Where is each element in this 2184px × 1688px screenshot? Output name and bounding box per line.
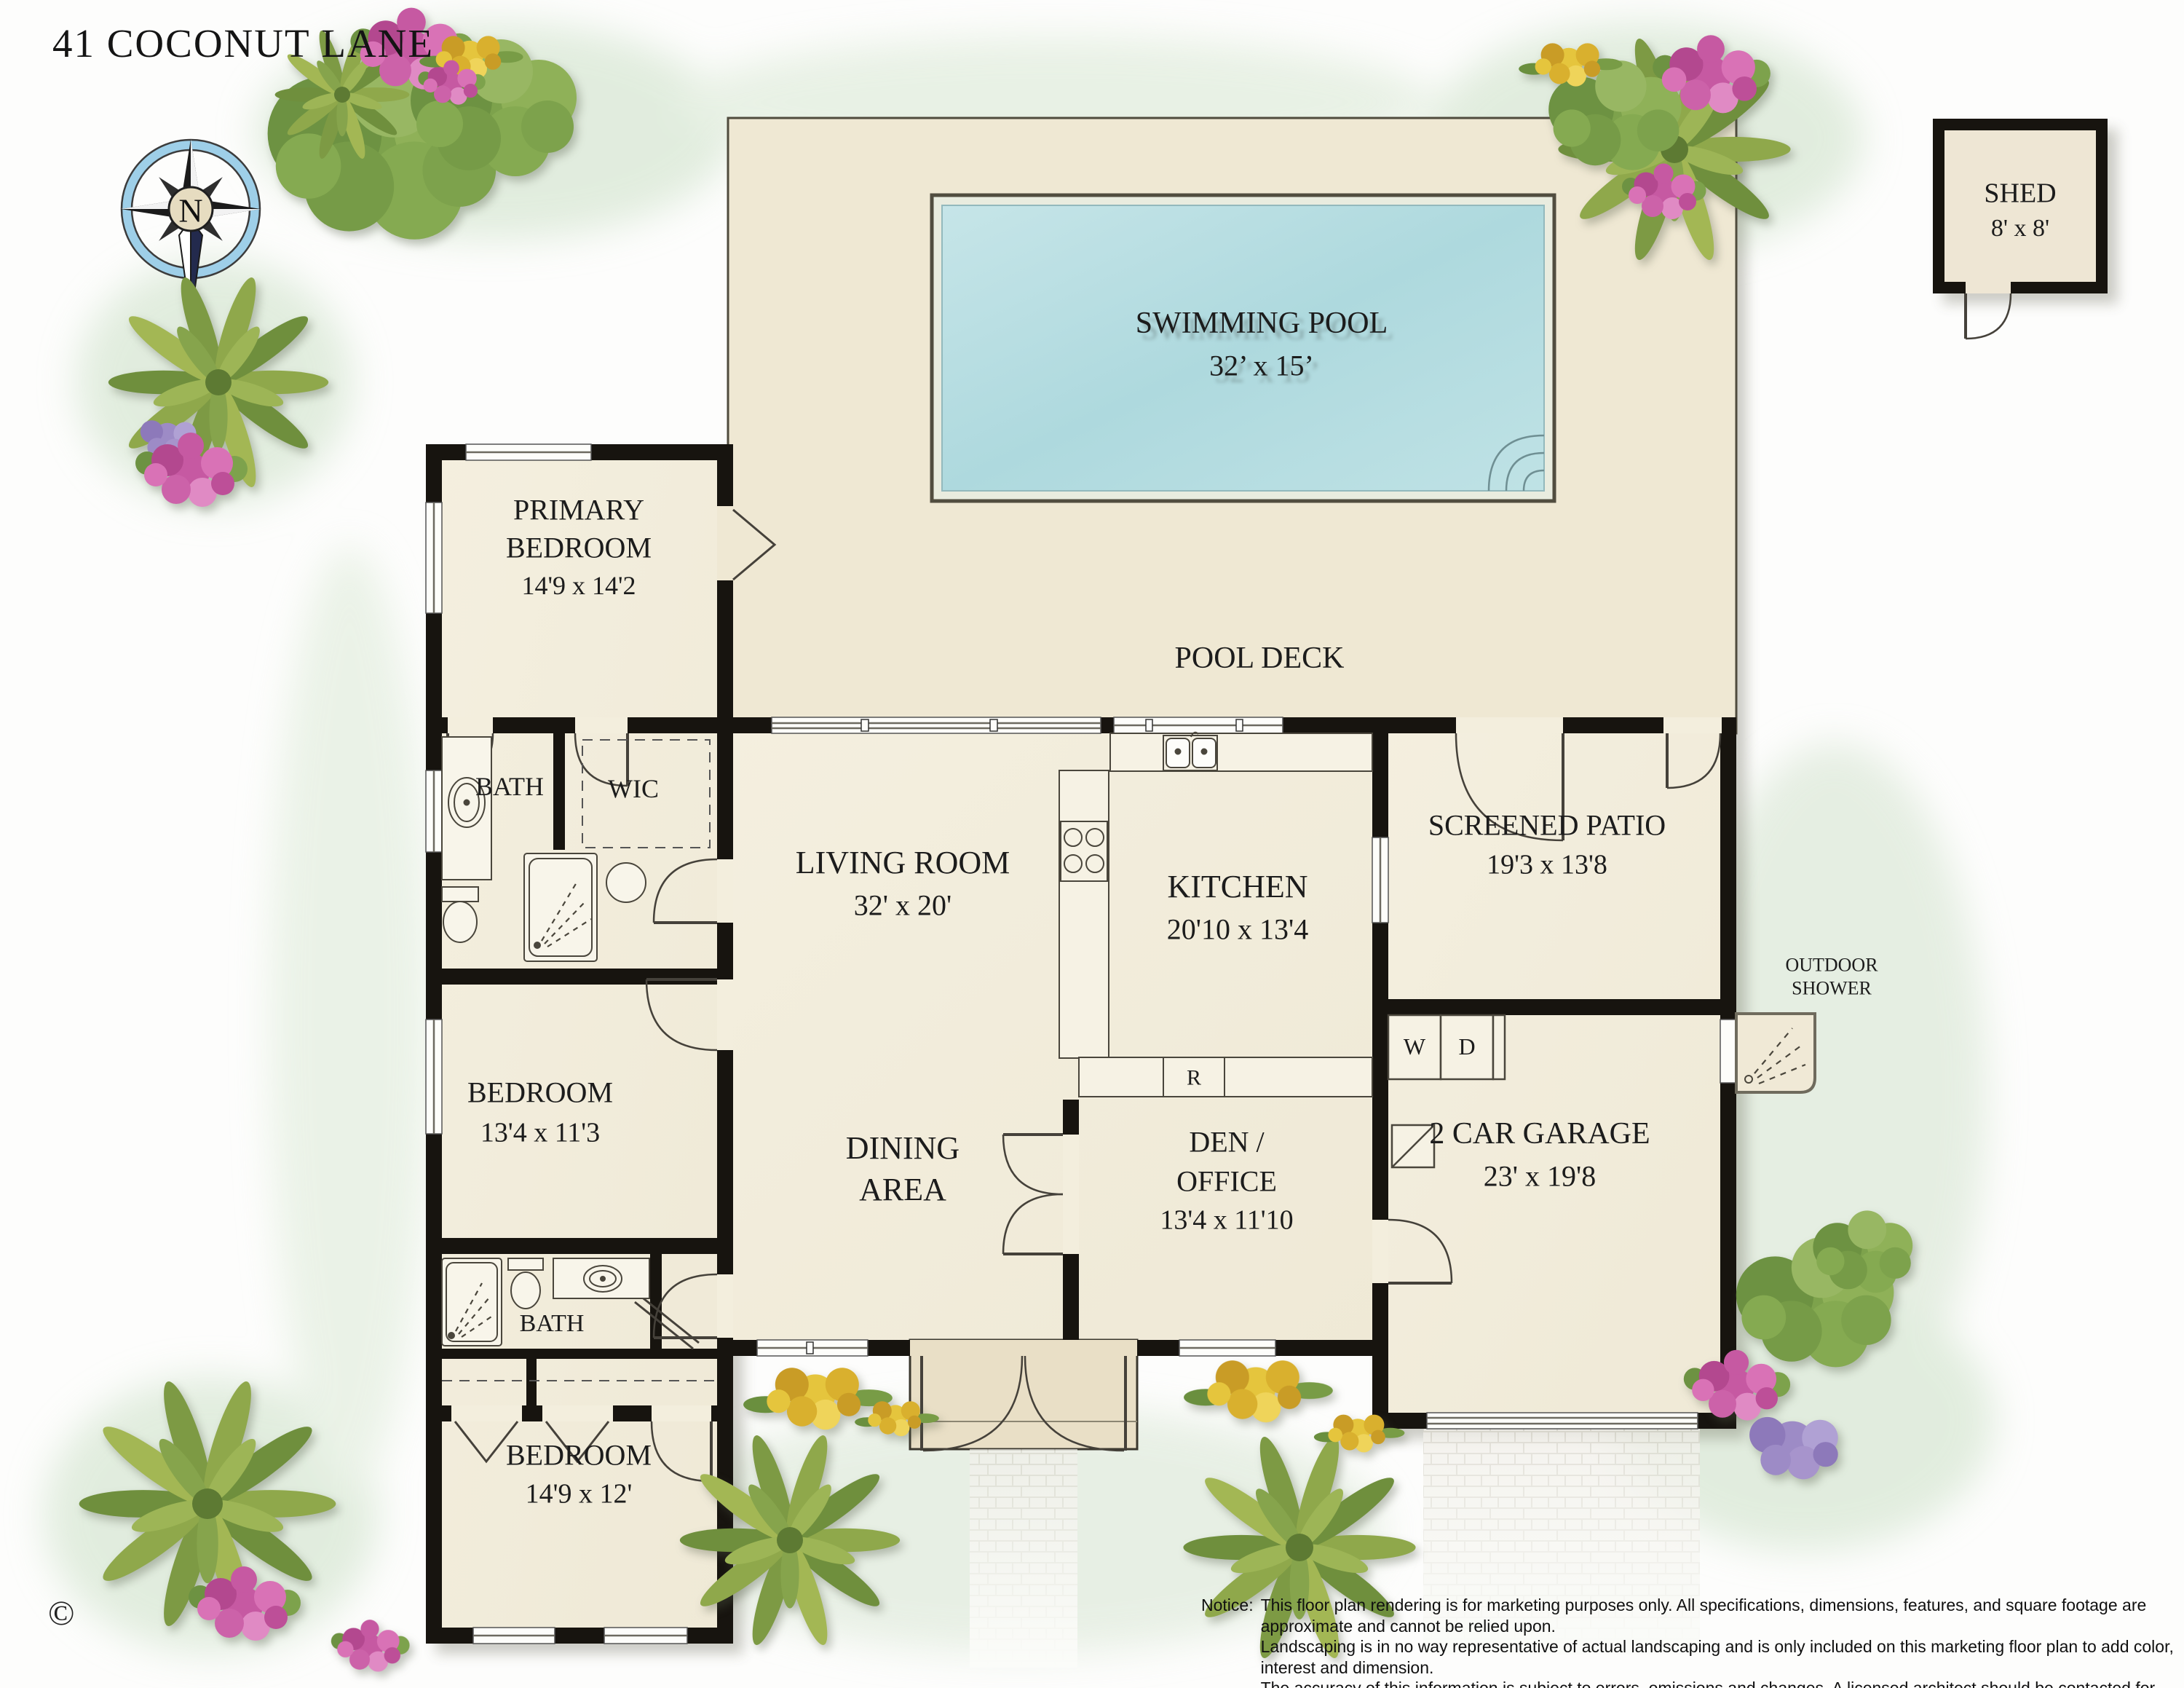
toilet-icon — [508, 1258, 543, 1309]
label-screened-patio: SCREENED PATIO — [1428, 808, 1666, 842]
label-den-office-1: DEN / — [1189, 1124, 1264, 1159]
label-primary-bedroom-2: BEDROOM — [506, 530, 652, 564]
label-swimming-pool-dims: 32’ x 15’ — [1209, 348, 1314, 382]
compass-north-label: N — [178, 192, 202, 230]
label-outdoor-shower-1: OUTDOOR — [1785, 955, 1878, 977]
label-bedroom2: BEDROOM — [467, 1075, 613, 1109]
floor-plan-page: 41 COCONUT LANE N SWIMMING POOL 32’ x 15… — [0, 0, 2184, 1688]
entry-porch — [910, 1340, 1137, 1449]
label-dining-2: AREA — [859, 1171, 946, 1209]
label-bath2: BATH — [520, 1309, 585, 1338]
floor-plan-drawing — [0, 0, 2184, 1688]
label-bedroom2-dims: 13'4 x 11'3 — [480, 1117, 600, 1150]
stove-icon — [1061, 821, 1107, 881]
label-bedroom3: BEDROOM — [506, 1437, 652, 1472]
notice-line-3: The accuracy of this information is subj… — [1261, 1678, 2180, 1688]
label-bedroom3-dims: 14'9 x 12' — [526, 1478, 633, 1511]
water-heater-icon — [1392, 1125, 1434, 1167]
label-dining-1: DINING — [846, 1129, 960, 1167]
label-den-office-2: OFFICE — [1176, 1164, 1277, 1198]
label-wic: WIC — [608, 773, 659, 804]
notice-line-1: This floor plan rendering is for marketi… — [1261, 1595, 2180, 1636]
outdoor-shower-stall — [1736, 1014, 1815, 1092]
label-primary-bedroom-1: PRIMARY — [513, 492, 644, 526]
label-pool-deck: POOL DECK — [1175, 641, 1345, 677]
shower-icon — [442, 1258, 502, 1346]
label-living-room: LIVING ROOM — [796, 844, 1010, 882]
label-refrigerator: R — [1187, 1065, 1201, 1090]
label-screened-patio-dims: 19'3 x 13'8 — [1487, 849, 1607, 882]
notice-line-2: Landscaping is in no way representative … — [1261, 1636, 2180, 1678]
label-washer: W — [1404, 1033, 1425, 1061]
front-walkway — [970, 1449, 1077, 1668]
label-bath1: BATH — [475, 771, 544, 802]
label-dryer: D — [1458, 1033, 1475, 1061]
toilet-icon — [442, 887, 478, 942]
label-kitchen-dims: 20'10 x 13'4 — [1167, 912, 1308, 946]
page-title: 41 COCONUT LANE — [52, 20, 434, 66]
label-living-room-dims: 32' x 20' — [854, 888, 951, 922]
label-garage-dims: 23' x 19'8 — [1484, 1159, 1596, 1193]
kitchen-sink-icon — [1163, 733, 1217, 770]
shower-icon — [524, 853, 597, 961]
notice-block: Notice: This floor plan rendering is for… — [1201, 1595, 2180, 1688]
copyright-symbol: © — [48, 1593, 74, 1633]
label-den-office-dims: 13'4 x 11'10 — [1160, 1204, 1293, 1237]
label-primary-bedroom-dims: 14'9 x 14'2 — [522, 570, 636, 601]
label-shed-dims: 8' x 8' — [1991, 214, 2049, 243]
label-shed: SHED — [1984, 178, 2056, 210]
label-outdoor-shower-2: SHOWER — [1792, 978, 1872, 1001]
label-garage: 2 CAR GARAGE — [1429, 1116, 1650, 1153]
label-kitchen: KITCHEN — [1167, 868, 1307, 906]
label-swimming-pool: SWIMMING POOL — [1136, 306, 1388, 342]
notice-label: Notice: — [1201, 1595, 1254, 1688]
sink-icon — [553, 1258, 649, 1298]
stool-icon — [606, 863, 646, 902]
